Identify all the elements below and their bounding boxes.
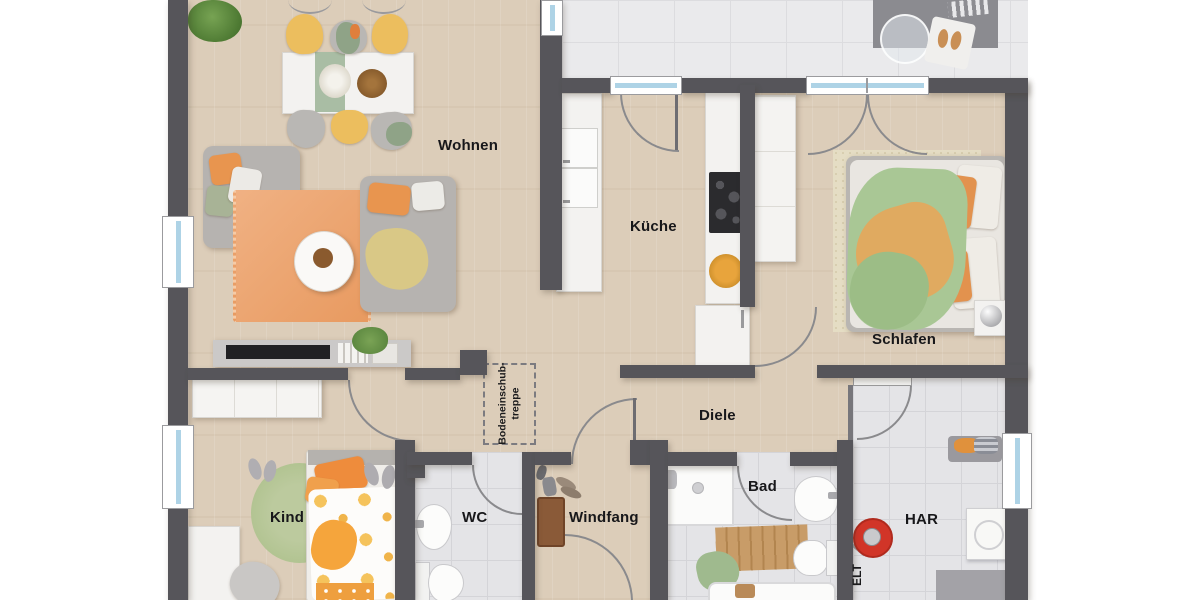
- room-label-wc: WC: [462, 509, 487, 526]
- room-label-windfang: Windfang: [569, 509, 639, 526]
- room-label-wohnen: Wohnen: [438, 137, 498, 154]
- wall-pier-diele: [460, 350, 487, 375]
- cabinet-handle: [741, 310, 744, 328]
- room-label-schlafen: Schlafen: [872, 331, 936, 348]
- wall-bad-top-right: [790, 452, 837, 466]
- shower-drain-icon: [692, 482, 704, 494]
- appliance-handle: [563, 200, 570, 203]
- wall-wohnen-bottom-left: [188, 368, 348, 380]
- wall-wohnen-kueche: [540, 0, 562, 290]
- room-label-kueche: Küche: [630, 218, 677, 235]
- wall-left-exterior: [168, 0, 188, 600]
- lamp-icon: [980, 305, 1002, 327]
- wall-bad-top-left: [668, 452, 737, 466]
- wall-right-exterior: [1005, 80, 1028, 600]
- attic-stairs-line2: treppe: [510, 388, 522, 420]
- wall-kueche-bottom: [620, 365, 755, 378]
- window-kind-left: [162, 425, 194, 509]
- toilet-icon: [793, 540, 829, 576]
- wooden-stool: [735, 584, 755, 598]
- wall-duct-wc: [407, 465, 425, 478]
- wall-windfang-top: [535, 452, 571, 465]
- plant-icon: [352, 327, 388, 354]
- wall-wc-top: [407, 452, 472, 465]
- window-glass: [176, 430, 181, 504]
- wall-schlafen-bottom: [817, 365, 1028, 378]
- window-glass: [550, 5, 555, 31]
- bathtub: [708, 582, 836, 600]
- wardrobe: [192, 378, 322, 418]
- wall-terrace-3: [925, 78, 1028, 93]
- wall-terrace-1: [562, 78, 612, 93]
- terrace-door-kueche: [610, 76, 682, 95]
- terrace-door-schlafen: [806, 76, 929, 95]
- window-wohnen-left: [162, 216, 194, 288]
- wall-wc-windfang: [522, 452, 535, 600]
- wall-windfang-bad: [650, 440, 668, 600]
- plant-icon: [188, 0, 242, 42]
- window-glass: [1015, 438, 1020, 504]
- window-wohnen-top: [541, 0, 563, 36]
- room-label-har: HAR: [905, 511, 938, 528]
- dining-chair: [331, 110, 368, 144]
- flower-bouquet-icon: [319, 64, 351, 98]
- toilet-icon: [428, 564, 464, 600]
- laundry-clothes-pattern: [974, 437, 998, 454]
- gray-appliance: [936, 570, 1006, 600]
- wall-wohnen-bottom-right: [405, 368, 460, 380]
- tv-icon: [226, 345, 330, 359]
- shoe-bench: [537, 497, 565, 547]
- floor-plan: Bodeneinschub- treppe Wohnen Küche Schla…: [0, 0, 1200, 600]
- electrical-label: ELT: [850, 564, 864, 586]
- washbasin-icon: [794, 476, 838, 522]
- wall-har-thin: [848, 385, 853, 440]
- wardrobe: [752, 95, 796, 262]
- decor-bowl-icon: [313, 248, 333, 268]
- fruit-bowl-icon: [709, 254, 743, 288]
- door-glass: [615, 83, 677, 88]
- terrace-glass-table: [880, 14, 930, 64]
- bed-end-box: [316, 583, 374, 600]
- attic-stairs-box: Bodeneinschub- treppe: [483, 363, 536, 445]
- window-glass: [176, 221, 181, 283]
- door-divider: [866, 78, 868, 93]
- wall-pier-windfang: [630, 440, 650, 465]
- room-label-diele: Diele: [699, 407, 736, 424]
- lounge-pillow-orange: [367, 182, 412, 216]
- lounge-pillow-white: [411, 181, 445, 212]
- vacuum-center-icon: [863, 528, 881, 546]
- faucet-icon: [414, 520, 424, 528]
- attic-stairs-line1: Bodeneinschub-: [497, 363, 509, 445]
- attic-stairs-label: Bodeneinschub- treppe: [497, 363, 522, 445]
- draped-cloth-orange: [350, 24, 360, 39]
- door-leaf-terrace-kueche: [675, 93, 678, 150]
- room-label-bad: Bad: [748, 478, 777, 495]
- fruit-bowl-icon: [357, 69, 387, 98]
- room-label-kind: Kind: [270, 509, 304, 526]
- window-har-right: [1002, 433, 1032, 509]
- wall-kueche-schlafen: [740, 85, 755, 307]
- washer-door-icon: [974, 520, 1004, 550]
- appliance-handle: [563, 160, 570, 163]
